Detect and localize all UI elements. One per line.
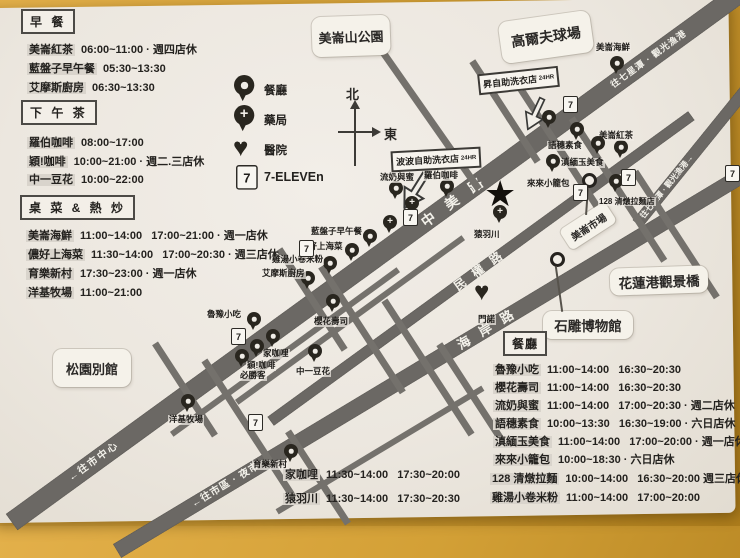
shop-hours: 11:00~14:00 17:00~20:00 · 週一店休 xyxy=(558,436,740,448)
pin-icon xyxy=(440,179,454,198)
poi-label: 羅伯咖啡 xyxy=(423,171,459,181)
area-stone-museum-label: 石雕博物館 xyxy=(554,315,622,335)
shop-name: 流奶與蜜 xyxy=(493,400,541,412)
shop-name: 魯豫小吃 xyxy=(493,364,541,376)
compass-horizontal-line xyxy=(338,131,372,133)
poi-label: 猿羽川 xyxy=(473,230,501,240)
poi-label: 語穗素食 xyxy=(547,141,583,151)
shop-hours: 11:00~14:00 16:30~20:30 xyxy=(547,382,681,394)
list-item: 儂好上海菜11:30~14:00 17:00~20:30 · 週三店休 xyxy=(26,246,279,262)
list-item: 藍盤子早午餐05:30~13:30 xyxy=(27,60,166,76)
area-golf-course-label: 高爾夫球場 xyxy=(510,22,582,52)
shop-hours: 10:00~22:00 xyxy=(81,174,144,186)
poi-label: 雞湯小卷米粉 xyxy=(271,255,324,265)
pin-icon xyxy=(235,349,249,368)
legend-seven-eleven-label: 7-ELEVEn xyxy=(264,170,324,184)
area-meilun-park: 美崙山公園 xyxy=(311,15,390,58)
shop-name: 美崙紅茶 xyxy=(27,44,75,56)
pin-icon xyxy=(323,256,337,275)
list-item: 育樂新村17:30~23:00 · 週一店休 xyxy=(26,265,196,281)
poi-label: 藍盤子早午餐 xyxy=(310,227,363,237)
list-item: 雞湯小卷米粉11:00~14:00 17:00~20:00 xyxy=(490,489,700,505)
legend-restaurant-pin-icon xyxy=(234,75,254,103)
shop-name: 家咖哩 xyxy=(283,469,320,481)
seven-eleven-icon: 7 xyxy=(299,240,314,257)
laundry-sheng-label: 昇自助洗衣店 xyxy=(483,72,538,91)
list-item: 語穗素食10:00~13:30 16:30~19:00 · 六日店休 xyxy=(493,415,735,431)
area-harbor-bridge: 花蓮港觀景橋 xyxy=(610,265,709,295)
shop-hours: 05:30~13:30 xyxy=(103,63,166,75)
pin-icon xyxy=(546,154,560,173)
shop-name: 語穗素食 xyxy=(493,418,541,430)
pin-icon xyxy=(308,344,322,363)
laundry-popo-label: 波波自助洗衣店 xyxy=(396,152,460,168)
poi-label: 櫻花壽司 xyxy=(313,317,349,327)
poi-label: 艾摩斯廚房 xyxy=(261,269,306,279)
list-item: 穎!咖啡10:00~21:00 · 週二.三店休 xyxy=(27,153,204,169)
shop-name: 滇緬玉美食 xyxy=(493,436,552,448)
shop-name: 中一豆花 xyxy=(27,174,75,186)
area-harbor-bridge-label: 花蓮港觀景橋 xyxy=(618,269,700,292)
poi-label: 美崙海鮮 xyxy=(595,43,631,53)
shop-hours: 11:30~14:00 17:30~20:00 xyxy=(326,469,460,481)
laundry-sheng-hours: 24HR xyxy=(539,74,555,82)
legend-pharmacy-pin-icon: + xyxy=(234,105,254,133)
shop-name: 羅伯咖啡 xyxy=(27,137,75,149)
legend-restaurant-label: 餐廳 xyxy=(264,82,287,98)
seven-eleven-icon: 7 xyxy=(248,414,263,431)
shop-hours: 11:00~14:00 17:00~21:00 · 週一店休 xyxy=(80,230,268,242)
pin-icon xyxy=(614,140,628,159)
pin-icon xyxy=(610,56,624,75)
list-item: 家咖哩11:30~14:00 17:30~20:00 xyxy=(283,466,460,482)
area-pine-garden: 松園別館 xyxy=(53,349,131,387)
shop-name: 雞湯小卷米粉 xyxy=(490,492,560,504)
shop-hours: 11:00~21:00 xyxy=(80,287,142,299)
section-header-banquet: 桌 菜 & 熱 炒 xyxy=(20,195,135,220)
pin-icon xyxy=(250,339,264,358)
poi-label: 滇緬玉美食 xyxy=(560,158,605,168)
pin-icon xyxy=(570,122,584,141)
shop-hours: 10:00~18:30 · 六日店休 xyxy=(558,454,674,466)
seven-eleven-icon: 7 xyxy=(725,165,740,182)
shop-name: 育樂新村 xyxy=(26,268,74,280)
shop-hours: 11:00~14:00 17:00~20:30 · 週二店休 xyxy=(547,400,735,412)
pin-icon xyxy=(181,394,195,413)
list-item: 美崙紅茶06:00~11:00 · 週四店休 xyxy=(27,41,197,57)
seven-eleven-icon: 7 xyxy=(563,96,578,113)
pin-icon xyxy=(247,312,261,331)
poi-label: 門諾 xyxy=(477,315,496,325)
area-pine-garden-label: 松園別館 xyxy=(66,359,118,378)
pin-icon xyxy=(591,136,605,155)
list-item: 中一豆花10:00~22:00 xyxy=(27,171,144,187)
compass-east-label: 東 xyxy=(384,124,397,143)
shop-hours: 08:00~17:00 xyxy=(81,137,144,149)
shop-name: 128 清燉拉麵 xyxy=(490,473,559,485)
shop-hours: 11:00~14:00 17:00~20:00 xyxy=(566,492,700,504)
section-header-breakfast: 早 餐 xyxy=(21,9,75,34)
pharmacy-pin-icon: + xyxy=(383,215,397,234)
map-photo: ←往市中心 中美路 往七星潭 · 觀光漁港 ←往市區 · 夜市 海岸路 民權路 … xyxy=(0,0,740,526)
museum-circle-marker xyxy=(550,252,565,267)
list-item: 流奶與蜜11:00~14:00 17:00~20:30 · 週二店休 xyxy=(493,397,735,413)
laundry-popo-hours: 24HR xyxy=(461,154,477,161)
list-item: 洋基牧場11:00~21:00 xyxy=(26,284,142,300)
section-header-afternoon-tea: 下 午 茶 xyxy=(21,100,97,125)
legend-hospital-label: 醫院 xyxy=(264,142,287,158)
shop-name: 猿羽川 xyxy=(283,493,320,505)
poi-label: 家咖哩 xyxy=(262,349,290,359)
pin-icon xyxy=(363,229,377,248)
shop-name: 儂好上海菜 xyxy=(26,249,85,261)
poi-label: 中一豆花 xyxy=(295,367,331,377)
shop-hours: 06:30~13:30 xyxy=(92,82,155,94)
seven-eleven-icon: 7 xyxy=(231,328,246,345)
shop-hours: 11:30~14:00 17:00~20:30 · 週三店休 xyxy=(91,249,279,261)
shop-hours: 11:00~14:00 16:30~20:30 xyxy=(547,364,681,376)
poi-label: 來來小籠包 xyxy=(526,179,571,189)
list-item: 猿羽川11:30~14:00 17:30~20:30 xyxy=(283,490,460,506)
compass-east-arrow-icon xyxy=(372,127,381,137)
poi-label: 128 清燉拉麵店 xyxy=(598,197,656,206)
shop-hours: 10:00~21:00 · 週二.三店休 xyxy=(74,156,205,168)
pharmacy-pin-icon: + xyxy=(493,205,507,224)
list-item: 滇緬玉美食11:00~14:00 17:00~20:00 · 週一店休 xyxy=(493,433,740,449)
poi-label: 流奶與蜜 xyxy=(379,173,415,183)
legend-seven-eleven-icon: 7 xyxy=(236,165,258,190)
area-stone-museum: 石雕博物館 xyxy=(543,311,633,339)
list-item: 羅伯咖啡08:00~17:00 xyxy=(27,134,144,150)
seven-eleven-icon: 7 xyxy=(573,184,588,201)
shop-name: 美崙海鮮 xyxy=(26,230,74,242)
seven-eleven-icon: 7 xyxy=(403,209,418,226)
shop-name: 藍盤子早午餐 xyxy=(27,63,97,75)
shop-hours: 06:00~11:00 · 週四店休 xyxy=(81,44,197,56)
pin-icon xyxy=(266,329,280,348)
hospital-icon: ♥+ xyxy=(474,278,489,304)
poi-label: 必勝客 xyxy=(239,371,267,381)
shop-hours: 10:00~13:30 16:30~19:00 · 六日店休 xyxy=(547,418,735,430)
pin-icon xyxy=(345,243,359,262)
list-item: 美崙海鮮11:00~14:00 17:00~21:00 · 週一店休 xyxy=(26,227,268,243)
section-header-restaurants: 餐廳 xyxy=(503,331,547,356)
compass-vertical-line xyxy=(354,108,356,166)
shop-hours: 17:30~23:00 · 週一店休 xyxy=(80,268,196,280)
legend-pharmacy-label: 藥局 xyxy=(264,112,287,128)
poi-label: 洋基牧場 xyxy=(168,415,204,425)
seven-eleven-icon: 7 xyxy=(621,169,636,186)
shop-name: 穎!咖啡 xyxy=(27,156,68,168)
list-item: 128 清燉拉麵10:00~14:00 16:30~20:00 週三店休 xyxy=(490,470,740,486)
shop-name: 來來小籠包 xyxy=(493,454,552,466)
poi-label: 魯豫小吃 xyxy=(206,310,242,320)
list-item: 魯豫小吃11:00~14:00 16:30~20:30 xyxy=(493,361,681,377)
list-item: 艾摩斯廚房06:30~13:30 xyxy=(27,79,155,95)
list-item: 來來小籠包10:00~18:30 · 六日店休 xyxy=(493,451,674,467)
shop-name: 洋基牧場 xyxy=(26,287,74,299)
shop-name: 櫻花壽司 xyxy=(493,382,541,394)
legend-hospital-icon: ♥+ xyxy=(233,134,248,160)
pin-icon xyxy=(542,110,556,129)
list-item: 櫻花壽司11:00~14:00 16:30~20:30 xyxy=(493,379,681,395)
shop-hours: 11:30~14:00 17:30~20:30 xyxy=(326,493,460,505)
pin-icon xyxy=(389,181,403,200)
shop-hours: 10:00~14:00 16:30~20:00 週三店休 xyxy=(565,473,740,485)
shop-name: 艾摩斯廚房 xyxy=(27,82,86,94)
pin-icon xyxy=(326,294,340,313)
area-meilun-park-label: 美崙山公園 xyxy=(318,25,384,46)
